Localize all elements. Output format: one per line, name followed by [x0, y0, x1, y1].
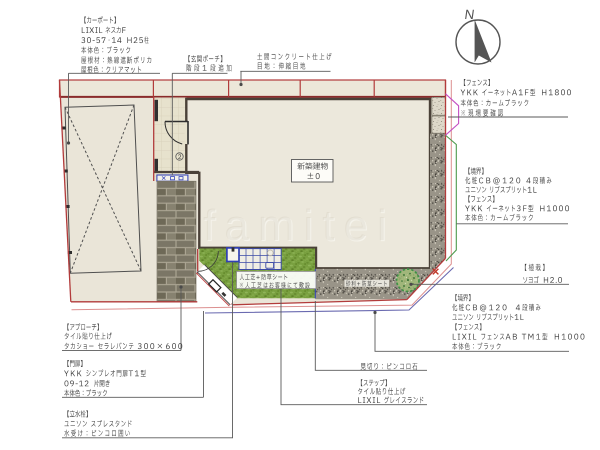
- svg-text:famitei: famitei: [203, 201, 396, 250]
